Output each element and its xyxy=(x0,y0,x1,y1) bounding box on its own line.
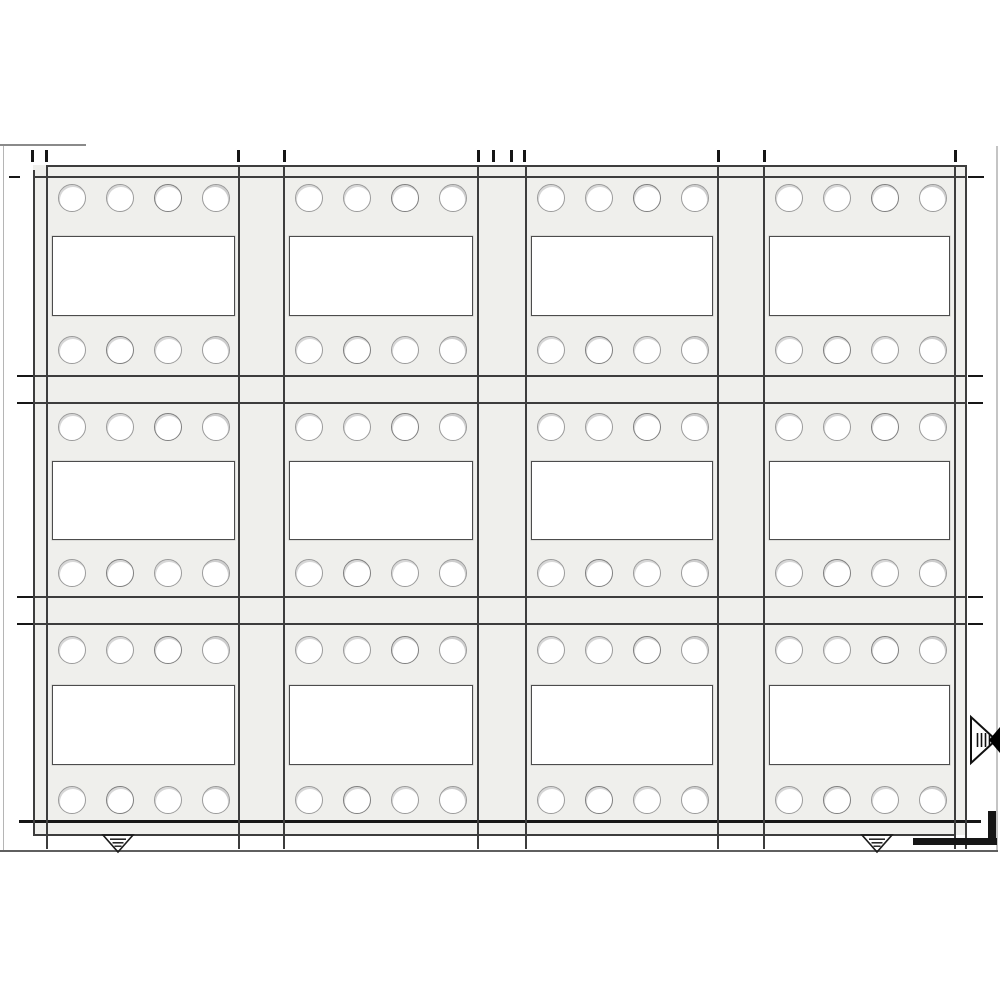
bolt-hole xyxy=(633,786,661,814)
top-tick xyxy=(477,150,480,162)
bolt-hole xyxy=(681,413,709,441)
bolt-hole xyxy=(537,413,565,441)
top-tick xyxy=(763,150,766,162)
grid-hline xyxy=(33,596,966,598)
grid-vline xyxy=(477,166,479,849)
top-tick xyxy=(954,150,957,162)
bolt-hole xyxy=(439,636,467,664)
top-tick xyxy=(523,150,526,162)
window-opening xyxy=(531,236,713,316)
bolt-hole xyxy=(154,184,182,212)
bolt-hole xyxy=(391,559,419,587)
panel-r1c3 xyxy=(525,176,717,375)
bolt-hole xyxy=(439,413,467,441)
bolt-hole xyxy=(202,336,230,364)
bolt-hole xyxy=(919,184,947,212)
bolt-hole xyxy=(633,559,661,587)
bolt-hole xyxy=(202,559,230,587)
bolt-hole xyxy=(537,336,565,364)
bolt-hole xyxy=(295,413,323,441)
bolt-hole xyxy=(439,184,467,212)
grid-hline xyxy=(33,834,956,836)
window-opening xyxy=(531,685,713,765)
bolt-hole xyxy=(823,559,851,587)
bolt-hole xyxy=(106,336,134,364)
bolt-hole xyxy=(633,413,661,441)
panel-r1c4 xyxy=(763,176,954,375)
panel-r3c3 xyxy=(525,624,717,820)
bolt-hole xyxy=(775,786,803,814)
bolt-hole xyxy=(439,559,467,587)
panel-r2c3 xyxy=(525,403,717,596)
bolt-hole xyxy=(154,336,182,364)
bolt-hole xyxy=(823,184,851,212)
bolt-hole xyxy=(391,413,419,441)
bolt-hole xyxy=(585,786,613,814)
bolt-hole xyxy=(919,786,947,814)
bolt-hole xyxy=(681,559,709,587)
edge-dash xyxy=(9,176,20,179)
bolt-hole xyxy=(58,559,86,587)
bolt-hole xyxy=(775,636,803,664)
bolt-hole xyxy=(106,413,134,441)
grid-hline xyxy=(19,820,981,823)
bolt-hole xyxy=(343,636,371,664)
bolt-hole xyxy=(871,336,899,364)
bolt-hole xyxy=(58,184,86,212)
bolt-hole xyxy=(154,413,182,441)
bolt-hole xyxy=(295,336,323,364)
bolt-hole xyxy=(585,336,613,364)
bolt-hole xyxy=(343,184,371,212)
bolt-hole xyxy=(154,786,182,814)
panel-r3c1 xyxy=(46,624,239,820)
bolt-hole xyxy=(537,184,565,212)
window-opening xyxy=(769,461,950,540)
window-opening xyxy=(52,685,235,765)
bolt-hole xyxy=(58,786,86,814)
ground-line xyxy=(0,850,998,852)
edge-dash xyxy=(17,375,33,378)
bolt-hole xyxy=(154,636,182,664)
edge-dash xyxy=(968,375,983,378)
bolt-hole xyxy=(391,184,419,212)
panel-r3c4 xyxy=(763,624,954,820)
panel-r3c2 xyxy=(283,624,477,820)
bolt-hole xyxy=(391,636,419,664)
window-opening xyxy=(769,236,950,316)
panel-r2c1 xyxy=(46,403,239,596)
bolt-hole xyxy=(106,559,134,587)
grid-vline xyxy=(33,170,35,835)
bolt-hole xyxy=(343,559,371,587)
window-opening xyxy=(289,685,473,765)
level-datum-icon xyxy=(859,833,895,855)
bolt-hole xyxy=(775,413,803,441)
panel-r1c2 xyxy=(283,176,477,375)
scanned-drawing-sheet xyxy=(0,0,1000,1000)
bolt-hole xyxy=(919,336,947,364)
top-tick xyxy=(283,150,286,162)
bolt-hole xyxy=(871,786,899,814)
bolt-hole xyxy=(681,786,709,814)
window-opening xyxy=(289,236,473,316)
panel-r2c2 xyxy=(283,403,477,596)
bolt-hole xyxy=(537,786,565,814)
edge-dash xyxy=(968,176,984,179)
bolt-hole xyxy=(343,413,371,441)
sheet-edge-top xyxy=(0,144,86,146)
bolt-hole xyxy=(154,559,182,587)
window-opening xyxy=(52,236,235,316)
bolt-hole xyxy=(681,184,709,212)
bolt-hole xyxy=(439,336,467,364)
edge-dash xyxy=(17,623,33,626)
bolt-hole xyxy=(106,786,134,814)
top-tick xyxy=(717,150,720,162)
bolt-hole xyxy=(775,184,803,212)
top-tick xyxy=(510,150,513,162)
bolt-hole xyxy=(58,413,86,441)
bolt-hole xyxy=(391,786,419,814)
bolt-hole xyxy=(106,184,134,212)
bolt-hole xyxy=(871,413,899,441)
bolt-hole xyxy=(681,336,709,364)
bolt-hole xyxy=(585,184,613,212)
bolt-hole xyxy=(343,786,371,814)
corner-mark-vertical xyxy=(988,811,996,845)
bolt-hole xyxy=(295,786,323,814)
bolt-hole xyxy=(295,184,323,212)
bolt-hole xyxy=(202,786,230,814)
top-tick xyxy=(45,150,48,162)
bolt-hole xyxy=(823,413,851,441)
bolt-hole xyxy=(823,636,851,664)
grid-vline xyxy=(954,165,956,849)
bolt-hole xyxy=(775,559,803,587)
bolt-hole xyxy=(775,336,803,364)
bolt-hole xyxy=(343,336,371,364)
bolt-hole xyxy=(106,636,134,664)
bolt-hole xyxy=(871,559,899,587)
edge-dash xyxy=(968,402,983,405)
edge-dash xyxy=(968,623,983,626)
window-opening xyxy=(52,461,235,540)
top-tick xyxy=(31,150,34,162)
grid-hline xyxy=(46,165,966,167)
bolt-hole xyxy=(537,559,565,587)
bolt-hole xyxy=(919,559,947,587)
bolt-hole xyxy=(202,636,230,664)
bolt-hole xyxy=(681,636,709,664)
section-arrow-icon xyxy=(969,712,1000,768)
bolt-hole xyxy=(919,636,947,664)
grid-vline xyxy=(965,165,967,849)
edge-dash xyxy=(17,402,33,405)
window-opening xyxy=(769,685,950,765)
bolt-hole xyxy=(537,636,565,664)
bolt-hole xyxy=(202,413,230,441)
bolt-hole xyxy=(439,786,467,814)
bolt-hole xyxy=(58,636,86,664)
bolt-hole xyxy=(823,336,851,364)
window-opening xyxy=(531,461,713,540)
edge-dash xyxy=(968,596,983,599)
top-tick xyxy=(237,150,240,162)
bolt-hole xyxy=(585,636,613,664)
bolt-hole xyxy=(585,413,613,441)
grid-hline xyxy=(33,375,966,377)
bolt-hole xyxy=(633,636,661,664)
panel-r2c4 xyxy=(763,403,954,596)
panel-r1c1 xyxy=(46,176,239,375)
bolt-hole xyxy=(295,559,323,587)
bolt-hole xyxy=(823,786,851,814)
top-tick xyxy=(492,150,495,162)
bolt-hole xyxy=(391,336,419,364)
grid-vline xyxy=(717,166,719,849)
window-opening xyxy=(289,461,473,540)
level-datum-icon xyxy=(100,833,136,855)
bolt-hole xyxy=(202,184,230,212)
bolt-hole xyxy=(871,636,899,664)
bolt-hole xyxy=(633,184,661,212)
corner-mark-horizontal xyxy=(913,838,997,845)
bolt-hole xyxy=(633,336,661,364)
bolt-hole xyxy=(919,413,947,441)
bolt-hole xyxy=(871,184,899,212)
bolt-hole xyxy=(58,336,86,364)
edge-dash xyxy=(17,596,33,599)
sheet-edge-left xyxy=(3,146,4,851)
bolt-hole xyxy=(295,636,323,664)
bolt-hole xyxy=(585,559,613,587)
